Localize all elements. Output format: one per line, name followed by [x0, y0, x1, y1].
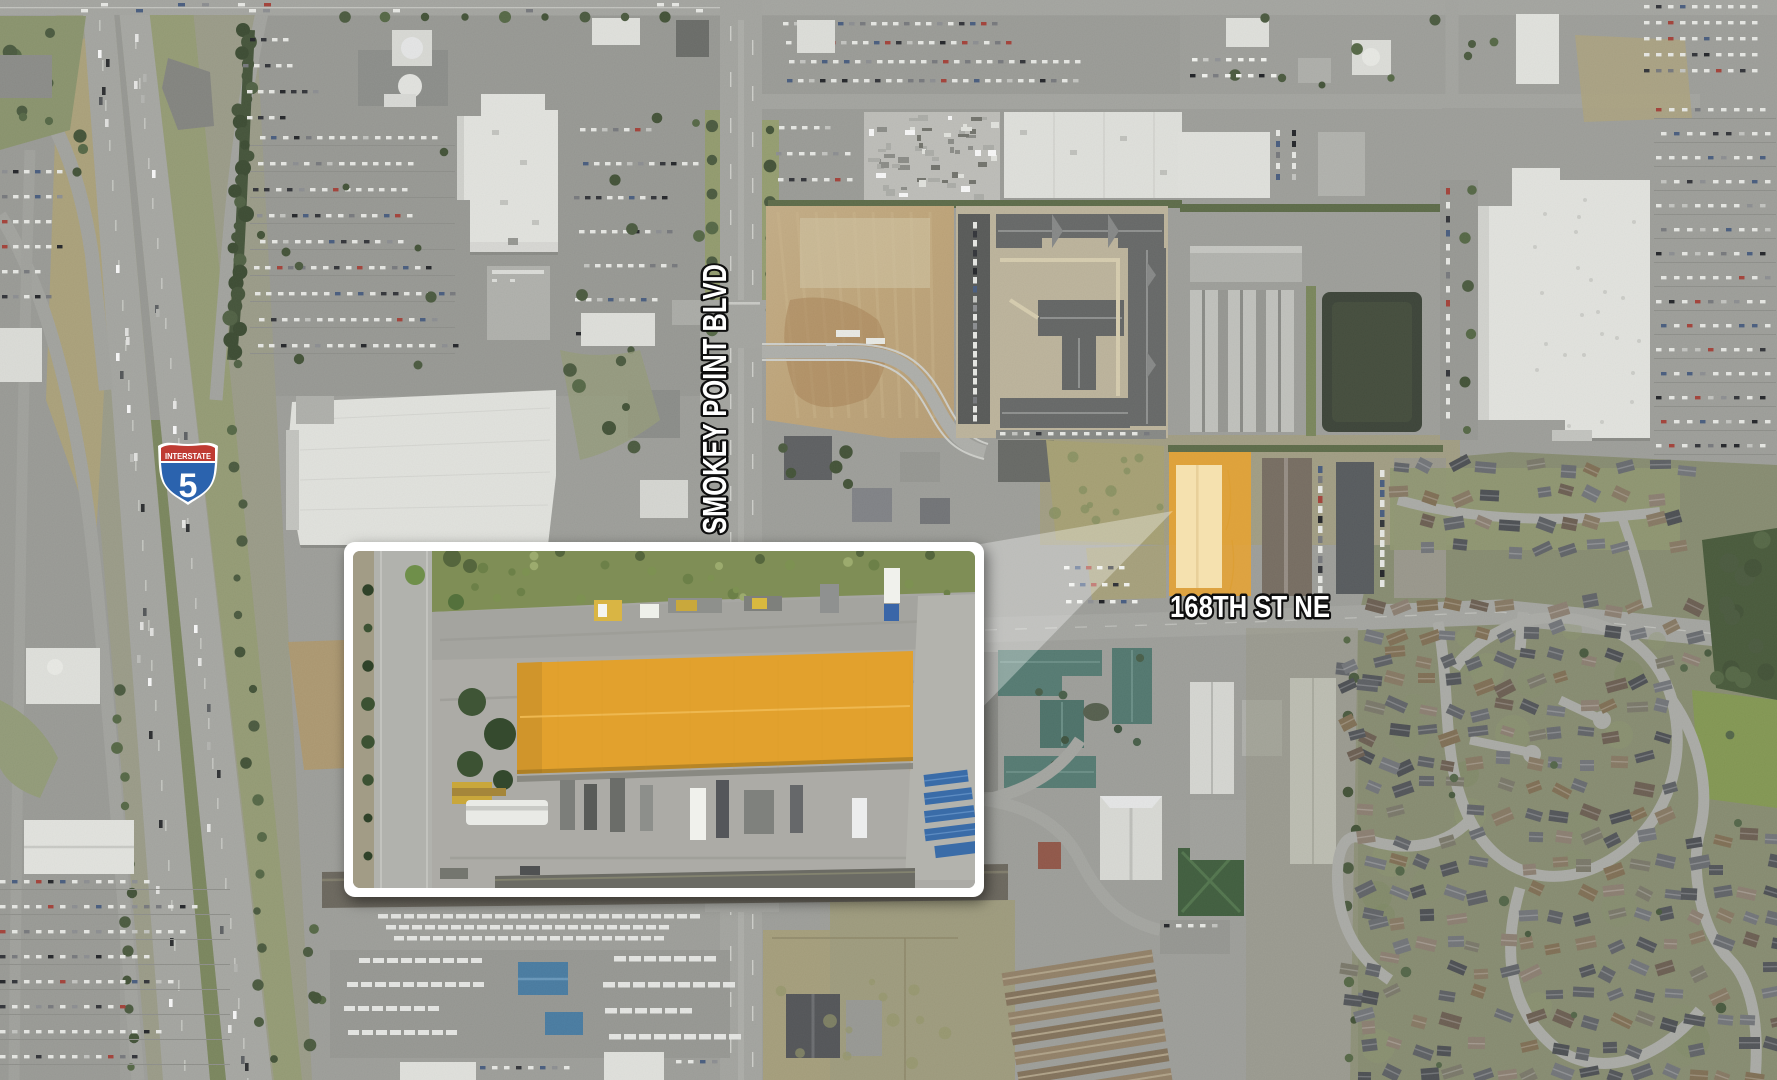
svg-text:168TH ST NE: 168TH ST NE: [1170, 589, 1330, 624]
svg-text:5: 5: [179, 467, 198, 505]
svg-text:SMOKEY POINT BLVD: SMOKEY POINT BLVD: [696, 264, 733, 534]
svg-text:INTERSTATE: INTERSTATE: [165, 451, 211, 461]
